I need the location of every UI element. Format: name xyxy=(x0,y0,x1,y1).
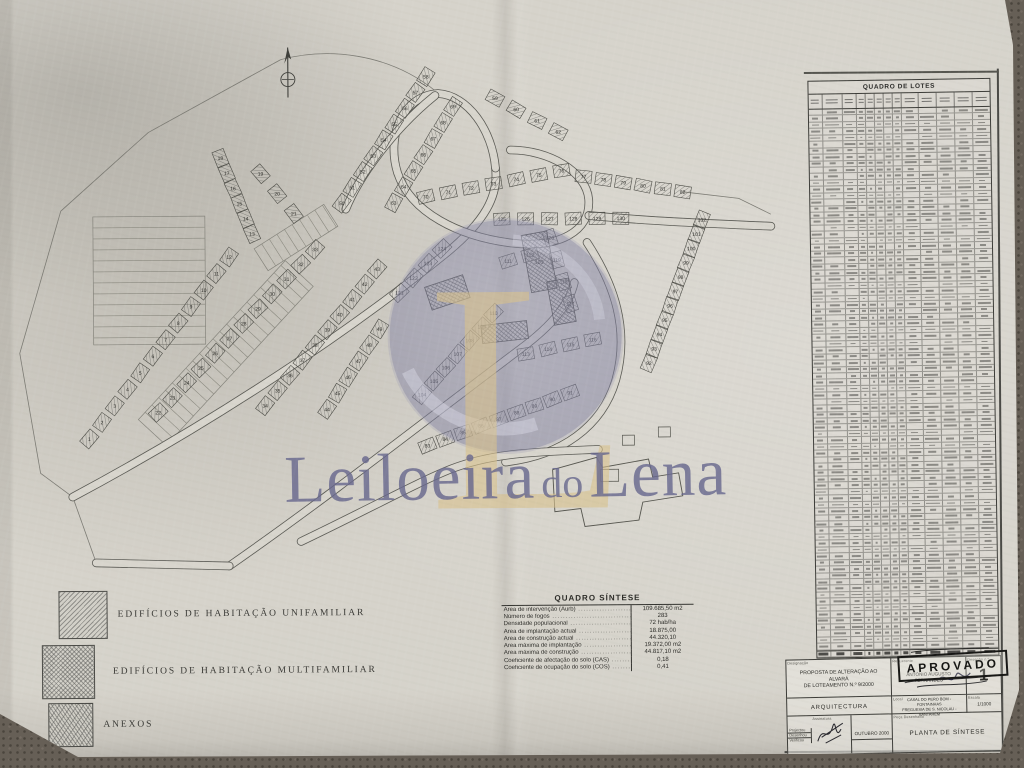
lot-table-row xyxy=(812,294,993,303)
signature-area: Assinatura xyxy=(811,715,852,754)
lot-table-row xyxy=(817,641,998,650)
lot-table-row xyxy=(813,351,994,360)
lot-table-row xyxy=(813,345,994,354)
svg-text:29: 29 xyxy=(255,307,261,313)
lot-table-row xyxy=(814,442,995,451)
svg-text:6: 6 xyxy=(151,354,154,360)
lot-table-row xyxy=(809,126,990,135)
svg-text:92: 92 xyxy=(646,361,652,367)
lot-table-row xyxy=(816,545,997,554)
lot-table-row xyxy=(814,435,995,444)
lot-table-row xyxy=(815,512,996,521)
titleblock-designacao-cell: Designação PROPOSTA DE ALTERAÇÃO AO ALVA… xyxy=(786,658,892,698)
svg-text:44: 44 xyxy=(324,407,330,413)
svg-text:104: 104 xyxy=(418,392,427,398)
site-plan-drawing: 1234567891011121314151617181920212223242… xyxy=(0,0,1024,768)
svg-text:84: 84 xyxy=(442,437,448,443)
lot-table-row xyxy=(811,261,992,270)
svg-text:19: 19 xyxy=(258,172,264,178)
svg-text:129: 129 xyxy=(593,216,602,222)
svg-text:68: 68 xyxy=(440,120,446,126)
escala-value: 1/1000 xyxy=(974,697,994,709)
sheet-frame-right xyxy=(997,69,1004,752)
svg-text:86: 86 xyxy=(478,424,484,430)
lot-table-row xyxy=(817,603,998,612)
svg-text:5: 5 xyxy=(139,371,142,377)
svg-text:16: 16 xyxy=(230,186,236,192)
svg-text:117: 117 xyxy=(566,301,574,307)
lot-table-row xyxy=(809,107,990,116)
svg-text:64: 64 xyxy=(401,185,407,191)
lot-table-row xyxy=(809,145,990,154)
svg-text:48: 48 xyxy=(366,343,372,349)
lot-table-row xyxy=(816,590,997,599)
lot-table-row xyxy=(817,635,998,644)
svg-text:83: 83 xyxy=(425,443,431,449)
svg-text:77: 77 xyxy=(581,174,587,180)
designacao-text: PROPOSTA DE ALTERAÇÃO AO ALVARÁ DE LOTEA… xyxy=(786,665,890,691)
lot-table-row xyxy=(812,300,993,309)
svg-text:10: 10 xyxy=(201,288,207,294)
svg-text:24: 24 xyxy=(184,381,190,387)
lot-table-row xyxy=(816,551,997,560)
svg-text:55: 55 xyxy=(391,122,397,128)
stamp-text: APROVADO xyxy=(906,656,999,675)
svg-text:3: 3 xyxy=(113,404,116,410)
svg-text:113: 113 xyxy=(522,352,530,358)
svg-text:13: 13 xyxy=(249,232,255,238)
lot-table-row xyxy=(815,506,996,515)
plan-sheet-paper: 1234567891011121314151617181920212223242… xyxy=(0,0,1024,768)
svg-text:36: 36 xyxy=(287,373,293,379)
svg-text:97: 97 xyxy=(673,289,679,295)
svg-text:115: 115 xyxy=(566,342,574,348)
svg-text:62: 62 xyxy=(555,130,561,136)
svg-text:107: 107 xyxy=(454,352,463,358)
lot-table-row xyxy=(811,268,992,277)
svg-text:75: 75 xyxy=(536,173,542,179)
lot-table-row xyxy=(815,493,996,502)
lot-table-row xyxy=(817,622,998,631)
escala-label: Escala xyxy=(968,695,980,699)
svg-text:82: 82 xyxy=(680,190,686,196)
legend-item-unifamiliar: EDIFÍCIOS DE HABITAÇÃO UNIFAMILIAR xyxy=(58,589,365,639)
lot-table-row xyxy=(812,326,993,335)
svg-text:30: 30 xyxy=(269,292,275,298)
svg-text:80: 80 xyxy=(640,184,646,190)
svg-text:47: 47 xyxy=(356,359,362,365)
legend-item-anexos: ANEXOS xyxy=(48,703,153,748)
lot-table-row xyxy=(814,409,995,418)
signature-row-labels: Projectou Desenhou Verificou xyxy=(788,728,812,743)
lot-table-row xyxy=(815,480,996,489)
lot-table-row xyxy=(814,422,995,431)
svg-text:7: 7 xyxy=(164,338,167,344)
lot-table-row xyxy=(815,525,996,534)
svg-text:128: 128 xyxy=(569,216,578,222)
lot-table-row xyxy=(815,487,996,496)
date-value: OUTUBRO 2000 xyxy=(852,727,892,740)
titleblock-signature-cell: Projectou Desenhou Verificou Assinatura … xyxy=(787,714,893,754)
requerente-name: ANTÓNIO AUGUSTO FERNANDES xyxy=(891,666,965,685)
quadro-sintese-row: Área máxima de implantação19.372,00 m2 xyxy=(502,641,694,650)
svg-text:85: 85 xyxy=(460,430,466,436)
lot-table-row xyxy=(813,390,994,399)
svg-text:25: 25 xyxy=(198,366,204,372)
lot-table-row xyxy=(814,454,995,463)
lot-table-row xyxy=(810,165,991,174)
quadro-sintese-row: Densidade populacional72 hab/ha xyxy=(502,619,694,628)
svg-text:41: 41 xyxy=(350,297,356,303)
svg-text:54: 54 xyxy=(381,138,387,144)
signature-scribble xyxy=(811,715,851,749)
lot-table-row xyxy=(810,178,991,187)
lot-table-row xyxy=(811,255,992,264)
legend-label-unifamiliar: EDIFÍCIOS DE HABITAÇÃO UNIFAMILIAR xyxy=(118,608,366,620)
svg-text:32: 32 xyxy=(298,262,304,268)
lot-table-row xyxy=(811,223,992,232)
lot-table-row xyxy=(817,615,998,624)
north-arrow-icon xyxy=(281,48,295,98)
watermark-brand-left: Leiloeira xyxy=(284,439,536,517)
lot-table-row xyxy=(814,467,995,476)
drawing-sheet: 1234567891011121314151617181920212223242… xyxy=(0,0,1024,768)
svg-text:67: 67 xyxy=(430,136,436,142)
svg-text:109: 109 xyxy=(477,325,486,331)
svg-text:15: 15 xyxy=(237,201,243,207)
lot-table-row xyxy=(814,429,995,438)
svg-text:73: 73 xyxy=(491,182,497,188)
legend-label-multifamiliar: EDIFÍCIOS DE HABITAÇÃO MULTIFAMILIAR xyxy=(113,665,377,677)
watermark-brand: LeiloeiradoLena xyxy=(0,429,1011,524)
svg-text:94: 94 xyxy=(657,332,663,338)
lot-table-row xyxy=(813,358,994,367)
lot-table-row xyxy=(816,577,997,586)
svg-text:9: 9 xyxy=(190,305,193,311)
svg-text:112: 112 xyxy=(526,253,534,259)
svg-text:42: 42 xyxy=(362,282,368,288)
svg-text:53: 53 xyxy=(371,154,377,160)
svg-text:39: 39 xyxy=(325,328,331,334)
parcel-boundary xyxy=(18,51,774,568)
svg-text:100: 100 xyxy=(687,246,696,252)
svg-text:58: 58 xyxy=(423,74,429,80)
svg-text:88: 88 xyxy=(514,410,520,416)
quadro-de-lotes-header xyxy=(809,92,990,110)
date-column: OUTUBRO 2000 xyxy=(852,727,892,740)
lot-table-row xyxy=(816,564,997,573)
lot-table-row xyxy=(812,319,993,328)
hatch-swatch-anexos xyxy=(48,703,93,747)
desenho-number: 1 xyxy=(979,665,989,685)
svg-text:110: 110 xyxy=(489,311,497,317)
lot-table-row xyxy=(810,171,991,180)
svg-text:81: 81 xyxy=(660,187,666,193)
local-label: Local xyxy=(893,697,903,701)
svg-text:71: 71 xyxy=(446,190,452,196)
lot-table-row xyxy=(812,339,993,348)
svg-text:90: 90 xyxy=(549,397,555,403)
titleblock-especialidade-cell: ARQUITECTURA xyxy=(787,696,892,716)
svg-text:17: 17 xyxy=(224,171,230,177)
svg-text:93: 93 xyxy=(651,347,657,353)
assinatura-label: Assinatura xyxy=(812,716,831,720)
svg-text:12: 12 xyxy=(226,255,232,261)
quadro-sintese-row: Área de implantação actual18.875,00 xyxy=(502,627,694,636)
svg-text:74: 74 xyxy=(513,177,519,183)
photo-scene: 1234567891011121314151617181920212223242… xyxy=(0,0,1024,768)
svg-text:99: 99 xyxy=(683,261,689,267)
quadro-sintese-row: Área de intervenção (Aurb)109.685,50 m2 xyxy=(502,605,694,614)
svg-text:114: 114 xyxy=(544,347,552,353)
svg-text:102: 102 xyxy=(698,218,707,224)
svg-text:106: 106 xyxy=(442,365,451,371)
svg-text:89: 89 xyxy=(532,404,538,410)
quadro-de-lotes-table: QUADRO DE LOTES xyxy=(807,78,999,659)
svg-text:126: 126 xyxy=(521,217,530,223)
aprovado-stamp: APROVADO xyxy=(897,644,1009,694)
lot-table-row xyxy=(812,313,993,322)
svg-text:66: 66 xyxy=(421,152,427,158)
lot-table-row xyxy=(815,474,996,483)
svg-text:35: 35 xyxy=(275,388,281,394)
titleblock-escala-cell: Escala 1/1000 xyxy=(967,694,1001,713)
svg-text:79: 79 xyxy=(620,180,626,186)
svg-text:78: 78 xyxy=(601,177,607,183)
svg-text:122: 122 xyxy=(409,276,418,282)
watermark-monogram: L xyxy=(427,207,630,608)
watermark-circle xyxy=(389,219,623,453)
lot-table-row xyxy=(809,139,990,148)
lot-table-row xyxy=(816,532,997,541)
svg-text:40: 40 xyxy=(337,312,343,318)
svg-text:95: 95 xyxy=(662,318,668,324)
svg-text:70: 70 xyxy=(423,194,429,200)
svg-text:111: 111 xyxy=(504,259,512,265)
svg-text:59: 59 xyxy=(492,96,498,102)
lot-table-row xyxy=(817,609,998,618)
lot-table-row xyxy=(813,364,994,373)
lot-table-row xyxy=(813,384,994,393)
lot-table-row xyxy=(812,306,993,315)
svg-text:127: 127 xyxy=(545,217,554,223)
lot-table-row xyxy=(813,397,994,406)
svg-text:22: 22 xyxy=(155,410,161,416)
lot-table-row xyxy=(817,628,998,637)
svg-text:31: 31 xyxy=(284,277,290,283)
lot-table-row xyxy=(813,403,994,412)
peca-label: Peça Desenhada xyxy=(893,714,923,719)
svg-text:125: 125 xyxy=(498,217,507,223)
svg-text:130: 130 xyxy=(617,216,626,222)
svg-text:45: 45 xyxy=(335,391,341,397)
quadro-de-lotes-title: QUADRO DE LOTES xyxy=(808,79,989,95)
svg-text:8: 8 xyxy=(177,321,180,327)
hatch-swatch-unifamiliar xyxy=(58,591,107,639)
svg-text:14: 14 xyxy=(243,217,249,223)
svg-text:4: 4 xyxy=(126,387,129,393)
local-text: CASAL DO PERO BOM - FONTAINHAS FREGUESIA… xyxy=(892,690,967,718)
svg-text:108: 108 xyxy=(466,338,475,344)
especialidade-text: ARQUITECTURA xyxy=(808,700,871,713)
svg-text:37: 37 xyxy=(300,358,306,364)
quadro-de-lotes-rows xyxy=(809,107,999,658)
svg-text:18: 18 xyxy=(218,156,224,162)
quadro-sintese-rows: Área de intervenção (Aurb)109.685,50 m2N… xyxy=(502,605,694,672)
quadro-sintese-row: Coeficiente de afectação do solo (CAS)0,… xyxy=(502,656,694,665)
titleblock-requerente-cell: Requerente ANTÓNIO AUGUSTO FERNANDES xyxy=(891,657,967,697)
svg-text:96: 96 xyxy=(667,304,673,310)
stamp-scribbles xyxy=(897,644,1009,694)
stamp-border: APROVADO xyxy=(897,650,1008,682)
svg-text:121: 121 xyxy=(395,291,404,297)
svg-text:76: 76 xyxy=(559,169,565,175)
annex-strip-rows xyxy=(93,204,340,446)
svg-text:27: 27 xyxy=(227,336,233,342)
svg-text:124: 124 xyxy=(438,246,447,252)
lot-table-row xyxy=(810,191,991,200)
svg-text:65: 65 xyxy=(411,169,417,175)
lot-table-row xyxy=(811,236,992,245)
quadro-sintese-title: QUADRO SÍNTESE xyxy=(501,590,693,606)
svg-text:20: 20 xyxy=(274,192,280,198)
lot-table-row xyxy=(811,274,992,283)
svg-text:103: 103 xyxy=(535,260,544,266)
svg-text:56: 56 xyxy=(402,106,408,112)
svg-text:50: 50 xyxy=(339,201,345,207)
lot-table-row xyxy=(809,113,990,122)
lot-table-row xyxy=(812,287,993,296)
lot-table-row xyxy=(815,519,996,528)
lot-table-row xyxy=(816,583,997,592)
svg-text:69: 69 xyxy=(450,104,456,110)
lot-table-row xyxy=(810,203,991,212)
watermark-swirl xyxy=(389,219,623,453)
svg-text:33: 33 xyxy=(312,247,318,253)
lot-table-row xyxy=(811,242,992,251)
svg-text:87: 87 xyxy=(496,417,502,423)
watermark-brand-right: Lena xyxy=(588,435,727,511)
svg-text:28: 28 xyxy=(241,321,247,327)
multifamily-blocks: 103 xyxy=(424,231,576,344)
titleblock-peca-cell: Peça Desenhada PLANTA DE SÍNTESE xyxy=(892,712,1002,752)
quadro-sintese-row: Área de construção actual44.320,10 xyxy=(502,634,694,643)
svg-text:119: 119 xyxy=(553,258,561,264)
lot-table-row xyxy=(815,500,996,509)
street-network xyxy=(70,91,773,567)
svg-text:43: 43 xyxy=(374,267,380,273)
lot-table-row xyxy=(816,538,997,547)
lot-table-row xyxy=(811,216,992,225)
svg-text:123: 123 xyxy=(424,261,433,267)
svg-text:49: 49 xyxy=(377,327,383,333)
svg-text:57: 57 xyxy=(413,90,419,96)
desenho-label: Desenho n.º xyxy=(967,657,989,661)
hatch-swatch-multifamiliar xyxy=(42,645,95,699)
titleblock-local-cell: Local CASAL DO PERO BOM - FONTAINHAS FRE… xyxy=(892,695,967,715)
lot-table-row xyxy=(816,570,997,579)
svg-text:34: 34 xyxy=(262,404,268,410)
lot-table-row xyxy=(810,184,991,193)
svg-text:52: 52 xyxy=(360,169,366,175)
lot-table-row xyxy=(809,133,990,142)
sheet-frame-top xyxy=(804,71,999,74)
peca-title: PLANTA DE SÍNTESE xyxy=(906,726,988,739)
numbered-lots: 1234567891011121314151617181920212223242… xyxy=(77,65,712,457)
svg-text:116: 116 xyxy=(589,337,597,343)
requerente-label: Requerente xyxy=(892,658,913,662)
svg-text:26: 26 xyxy=(212,351,218,357)
legend-item-multifamiliar: EDIFÍCIOS DE HABITAÇÃO MULTIFAMILIAR xyxy=(42,643,377,699)
svg-text:11: 11 xyxy=(214,271,219,277)
lot-table-row xyxy=(809,120,990,129)
watermark-brand-mid: do xyxy=(535,461,590,508)
lot-table-row xyxy=(816,557,997,566)
quadro-sintese-row: Coeficiente de ocupação do solo (COS)0,4… xyxy=(502,663,694,672)
svg-text:61: 61 xyxy=(534,118,540,124)
legend-label-anexos: ANEXOS xyxy=(103,720,153,730)
lot-table-row xyxy=(810,152,991,161)
svg-text:60: 60 xyxy=(513,107,519,113)
svg-text:118: 118 xyxy=(560,280,568,286)
lot-table-row xyxy=(814,448,995,457)
lot-table-row xyxy=(811,229,992,238)
lot-table-row xyxy=(812,332,993,341)
svg-text:120: 120 xyxy=(546,236,555,242)
svg-text:91: 91 xyxy=(567,390,573,396)
svg-text:98: 98 xyxy=(678,275,684,281)
svg-text:101: 101 xyxy=(692,232,701,238)
lot-table-row xyxy=(814,416,995,425)
titleblock-desenho-cell: Desenho n.º 1 xyxy=(966,656,1001,695)
svg-text:105: 105 xyxy=(430,379,439,385)
existing-buildings-outline xyxy=(552,427,683,527)
svg-text:2: 2 xyxy=(101,420,104,426)
title-block: Designação PROPOSTA DE ALTERAÇÃO AO ALVA… xyxy=(785,655,1003,756)
quadro-sintese-row: Número de fogos283 xyxy=(502,612,694,621)
svg-text:38: 38 xyxy=(312,343,318,349)
lot-table-row xyxy=(810,197,991,206)
svg-text:1: 1 xyxy=(88,437,91,443)
quadro-sintese-row: Área máxima de construção44.817,10 m2 xyxy=(502,649,694,658)
svg-text:46: 46 xyxy=(345,375,351,381)
lot-table-row xyxy=(814,461,995,470)
lot-table-totals-row xyxy=(817,648,998,658)
designacao-label: Designação xyxy=(787,661,808,665)
lot-table-row xyxy=(817,596,998,605)
lot-table-row xyxy=(810,210,991,219)
quadro-sintese-table: QUADRO SÍNTESE Área de intervenção (Aurb… xyxy=(501,590,694,672)
lot-table-row xyxy=(811,248,992,257)
sheet-frame-bottom xyxy=(785,750,1003,754)
lot-table-row xyxy=(813,377,994,386)
svg-text:72: 72 xyxy=(468,186,474,192)
svg-text:51: 51 xyxy=(349,185,355,191)
lot-table-row xyxy=(810,158,991,167)
svg-text:21: 21 xyxy=(291,211,297,217)
svg-text:23: 23 xyxy=(170,396,176,402)
lot-table-row xyxy=(813,371,994,380)
lot-table-row xyxy=(812,281,993,290)
svg-text:63: 63 xyxy=(391,201,397,207)
